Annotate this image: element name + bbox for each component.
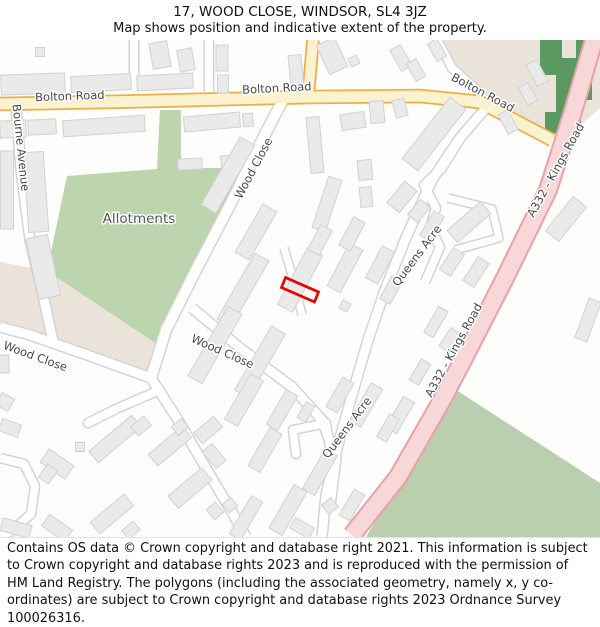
- road-label-allotments: Allotments: [103, 211, 176, 227]
- building: [177, 48, 196, 72]
- building: [369, 100, 385, 123]
- building: [36, 48, 45, 57]
- building: [242, 113, 253, 127]
- map-svg: Bolton RoadBolton RoadBolton RoadBourne …: [0, 40, 600, 537]
- building: [357, 159, 373, 180]
- building: [137, 73, 194, 91]
- road-label-bolton-road: Bolton Road: [35, 88, 105, 104]
- page-title: 17, WOOD CLOSE, WINDSOR, SL4 3JZ: [0, 0, 600, 21]
- building: [359, 187, 373, 208]
- building: [216, 45, 228, 71]
- map-canvas: Bolton RoadBolton RoadBolton RoadBourne …: [0, 40, 600, 537]
- building: [218, 75, 229, 93]
- copyright-attribution: Contains OS data © Crown copyright and d…: [0, 537, 600, 623]
- building: [0, 355, 9, 373]
- building: [76, 443, 85, 452]
- building: [28, 119, 57, 135]
- building: [149, 41, 171, 70]
- building: [178, 158, 203, 170]
- building: [1, 151, 14, 229]
- map-header: 17, WOOD CLOSE, WINDSOR, SL4 3JZ Map sho…: [0, 0, 600, 40]
- page-subtitle: Map shows position and indicative extent…: [0, 21, 600, 37]
- building: [340, 111, 366, 130]
